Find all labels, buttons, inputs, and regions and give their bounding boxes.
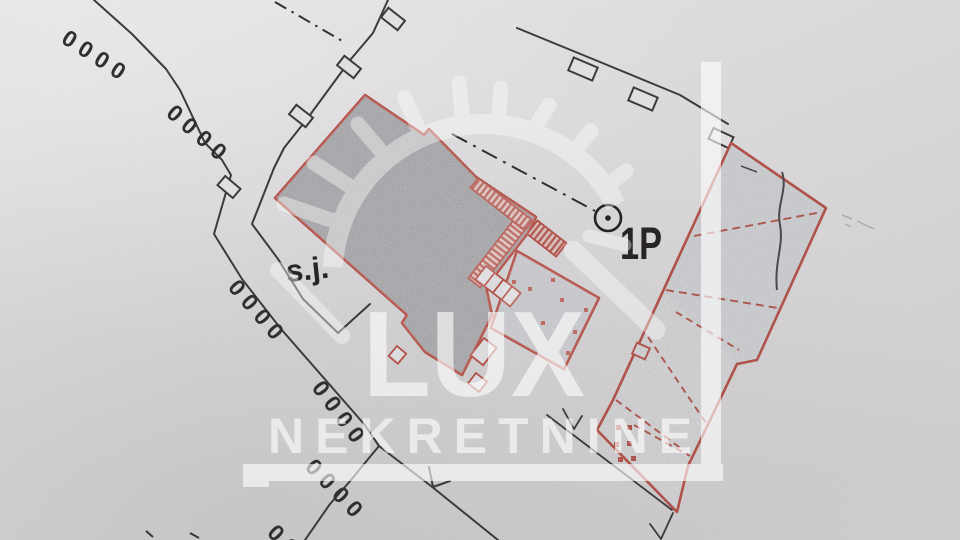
svg-text:NEKRETNINE: NEKRETNINE xyxy=(268,408,703,464)
svg-text:LUX: LUX xyxy=(363,286,585,422)
